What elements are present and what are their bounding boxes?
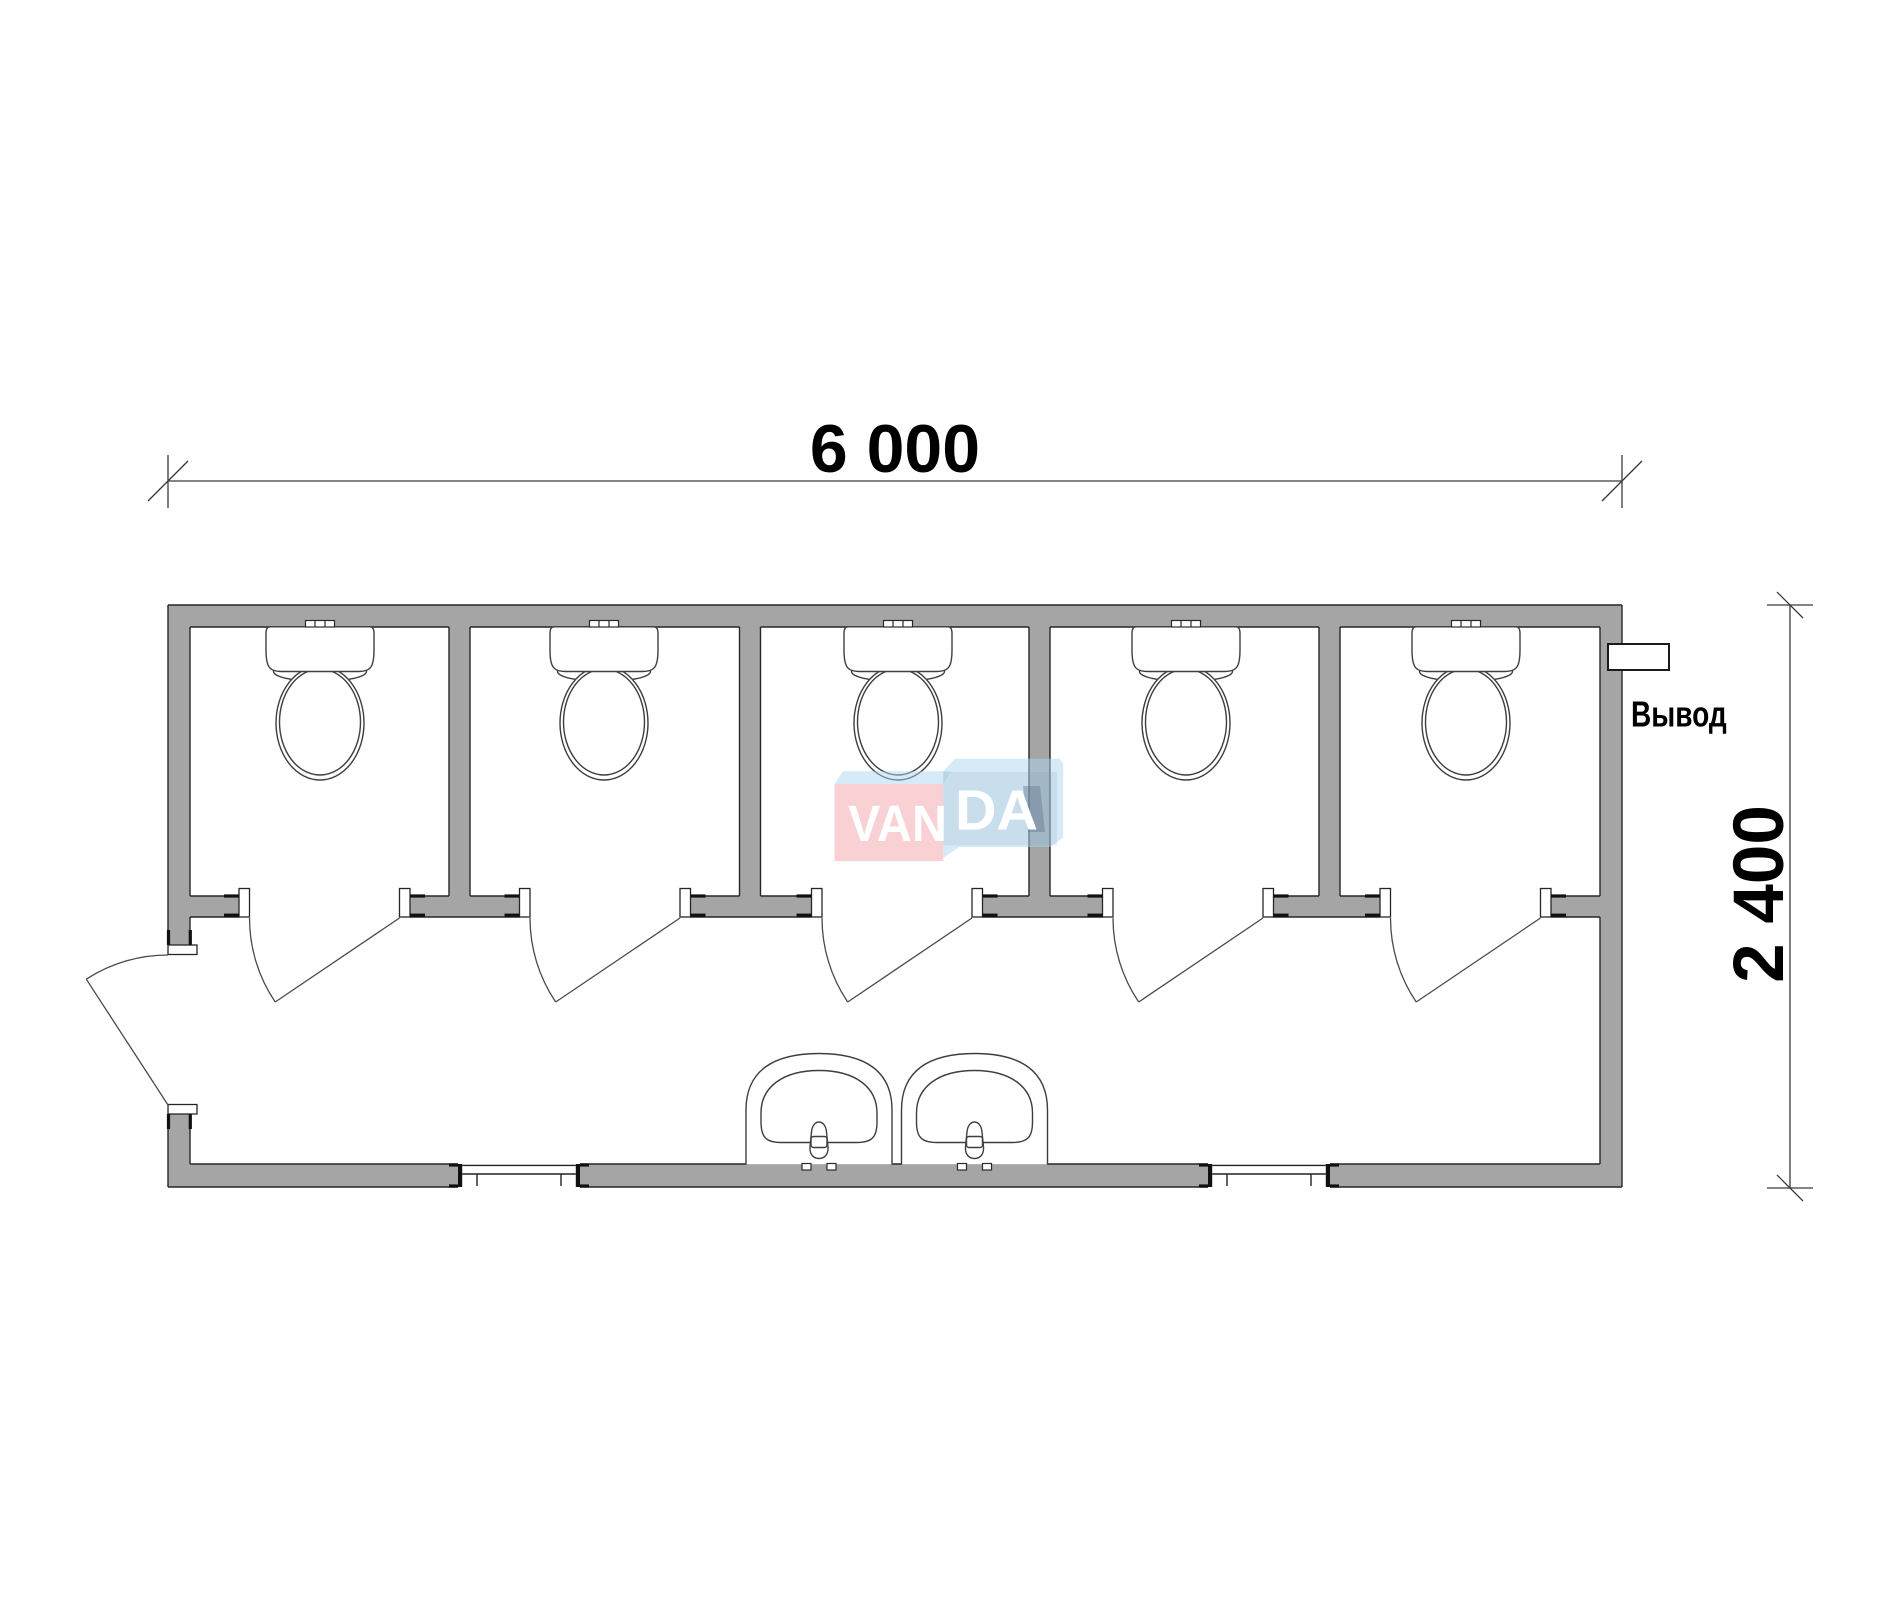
svg-text:6 000: 6 000	[810, 411, 980, 487]
svg-text:2 400: 2 400	[1720, 805, 1799, 983]
svg-text:Вывод: Вывод	[1631, 694, 1727, 734]
svg-text:VAN: VAN	[848, 795, 947, 852]
svg-text:DA: DA	[955, 779, 1038, 843]
